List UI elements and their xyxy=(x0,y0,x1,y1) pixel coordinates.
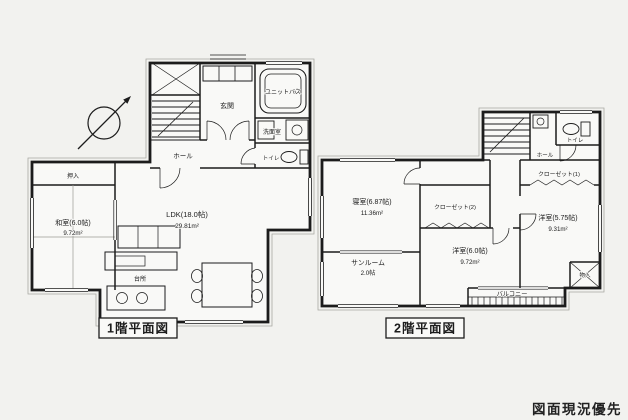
label-hall-2f: ホール xyxy=(537,152,554,159)
label-west-room: 洋室(6.0帖) xyxy=(452,246,487,255)
floor1-outline xyxy=(32,63,310,322)
floor1-plan: 玄関 ホール ユニットバス 洗面室 トイレ 押入 和室(6.0帖) 9.72m²… xyxy=(28,55,314,338)
floor2-title-box: 2階平面図 xyxy=(386,318,464,338)
label-ldk: LDK(18.0帖) xyxy=(166,209,208,219)
floor1-title: 1階平面図 xyxy=(107,321,169,336)
drawing-priority-caption: 図面現況優先 xyxy=(532,398,622,418)
label-sunroom: サンルーム xyxy=(351,259,385,267)
label-east-room: 洋室(5.75帖) xyxy=(538,213,577,222)
label-toilet-2f: トイレ xyxy=(567,138,584,144)
label-washroom: 洗面室 xyxy=(263,128,281,136)
floorplan-drawing: 玄関 ホール ユニットバス 洗面室 トイレ 押入 和室(6.0帖) 9.72m²… xyxy=(0,0,628,420)
compass-icon xyxy=(78,96,131,149)
label-storage-2f: 物入 xyxy=(579,271,591,279)
floorplan-page: 玄関 ホール ユニットバス 洗面室 トイレ 押入 和室(6.0帖) 9.72m²… xyxy=(0,0,628,420)
label-ldk-area: 29.81m² xyxy=(175,223,200,230)
label-kitchen: 台所 xyxy=(134,275,146,283)
label-washitsu: 和室(6.0帖) xyxy=(55,218,90,227)
label-bedroom: 寝室(6.87帖) xyxy=(352,197,391,206)
label-oshiire: 押入 xyxy=(67,172,79,180)
label-washitsu-area: 9.72m² xyxy=(63,230,82,237)
label-west-room-area: 9.72m² xyxy=(460,259,479,266)
label-unit-bath: ユニットバス xyxy=(265,89,301,96)
label-balcony: バルコニー xyxy=(497,291,528,298)
label-bedroom-area: 11.36m² xyxy=(361,210,383,217)
label-genkan: 玄関 xyxy=(220,101,234,110)
label-sunroom-size: 2.0帖 xyxy=(361,269,376,277)
label-toilet-1f: トイレ xyxy=(263,156,280,162)
floor2-plan: 寝室(6.87帖) 11.36m² サンルーム 2.0帖 クローゼット(2) ク… xyxy=(318,108,604,338)
floor1-title-box: 1階平面図 xyxy=(99,318,177,338)
label-hall-1f: ホール xyxy=(173,152,193,160)
label-east-room-area: 9.31m² xyxy=(548,226,567,233)
porch-steps xyxy=(210,55,246,59)
floor2-title: 2階平面図 xyxy=(394,321,456,336)
label-closet2: クローゼット(2) xyxy=(434,203,476,211)
label-closet1: クローゼット(1) xyxy=(538,170,580,178)
